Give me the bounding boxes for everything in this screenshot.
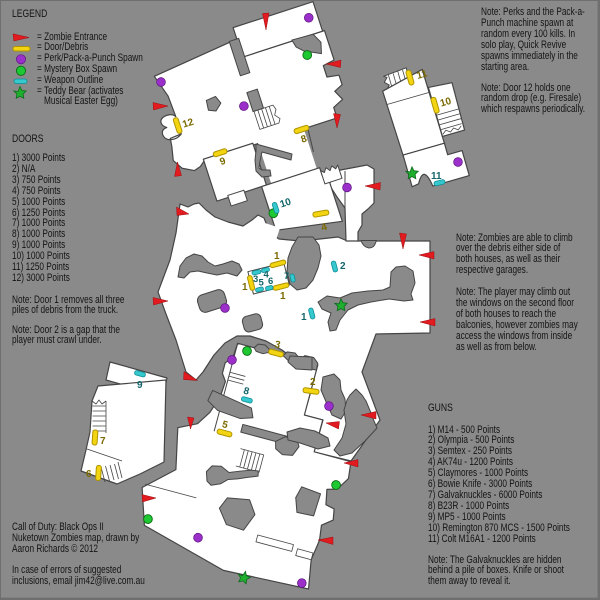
svg-text:6: 6 [86, 469, 92, 480]
svg-text:9: 9 [137, 380, 143, 391]
svg-text:2: 2 [310, 377, 316, 388]
svg-text:1: 1 [301, 312, 307, 323]
svg-text:3: 3 [253, 274, 258, 285]
svg-text:1: 1 [280, 291, 286, 302]
svg-text:1: 1 [274, 251, 280, 262]
svg-text:6: 6 [268, 276, 273, 287]
svg-text:2: 2 [340, 261, 346, 272]
svg-text:7: 7 [284, 271, 289, 282]
svg-text:1: 1 [242, 282, 248, 293]
svg-text:11: 11 [431, 171, 442, 182]
svg-text:7: 7 [100, 436, 106, 447]
